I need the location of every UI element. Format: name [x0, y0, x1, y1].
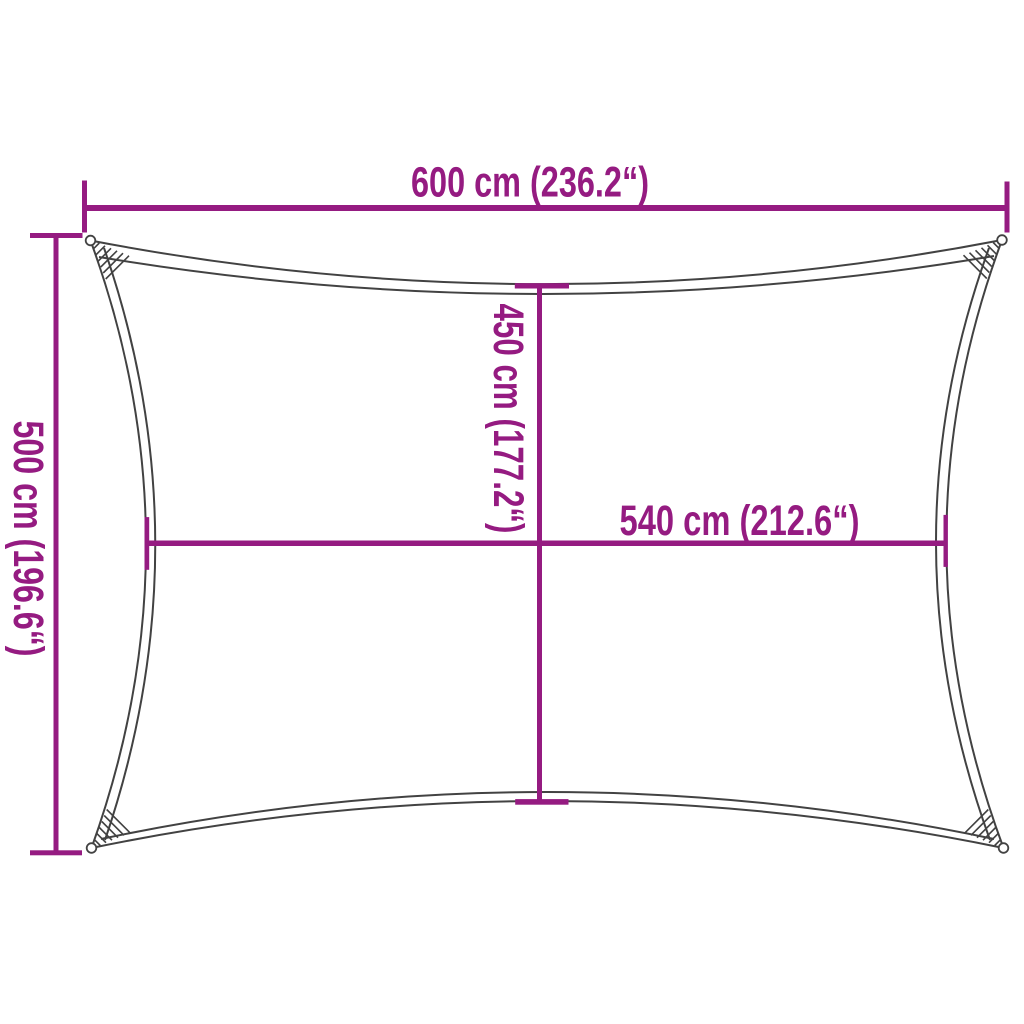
svg-text:540 cm (212.6“): 540 cm (212.6“)	[620, 498, 860, 545]
svg-text:450 cm (177.2“): 450 cm (177.2“)	[484, 304, 531, 534]
svg-text:600 cm (236.2“): 600 cm (236.2“)	[411, 160, 649, 207]
svg-text:500 cm (196.6“): 500 cm (196.6“)	[4, 421, 51, 657]
